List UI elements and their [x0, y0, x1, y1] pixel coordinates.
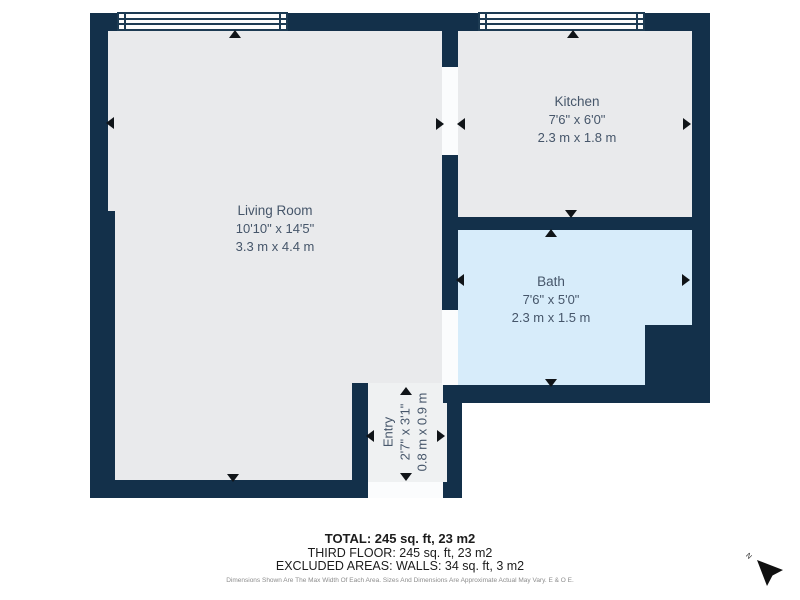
window-pane-line [480, 23, 643, 25]
entry-dim-arrow-left [366, 430, 374, 442]
kitchen-name: Kitchen [538, 93, 617, 111]
kitchen-dim-arrow-right [683, 118, 691, 130]
kitchen-dims-metric: 2.3 m x 1.8 m [538, 129, 617, 147]
window-end-cap [124, 14, 126, 29]
kitchen-window [478, 12, 645, 31]
summary-excluded-areas: EXCLUDED AREAS: WALLS: 34 sq. ft, 3 m2 [0, 559, 800, 573]
left-wall-step [108, 211, 115, 498]
entry-dim-arrow-right [437, 430, 445, 442]
living-kitchen-door-opening [442, 67, 458, 155]
bath-dims-metric: 2.3 m x 1.5 m [512, 309, 591, 327]
kitchen-dim-arrow-up [567, 30, 579, 38]
living-room-dims-imperial: 10'10" x 14'5" [236, 220, 315, 238]
living-room-dims-metric: 3.3 m x 4.4 m [236, 238, 315, 256]
right-wall [692, 13, 710, 403]
window-pane-line [119, 18, 286, 20]
living-room-window [117, 12, 288, 31]
bath-dim-arrow-right [682, 274, 690, 286]
window-end-cap [279, 14, 281, 29]
entry-label: Entry 2'7" x 3'1" 0.8 m x 0.9 m [380, 393, 431, 472]
bath-dims-imperial: 7'6" x 5'0" [512, 291, 591, 309]
entry-exterior-door-opening [368, 482, 443, 498]
living-kitchen-divider-top [442, 31, 458, 67]
summary-third-floor: THIRD FLOOR: 245 sq. ft, 23 m2 [0, 546, 800, 560]
left-wall [90, 13, 108, 498]
entry-right-wall-foot [443, 482, 462, 498]
summary-total: TOTAL: 245 sq. ft, 23 m2 [0, 531, 800, 546]
living-divider-mid [442, 155, 458, 310]
kitchen-label: Kitchen 7'6" x 6'0" 2.3 m x 1.8 m [538, 93, 617, 147]
bottom-wall [90, 480, 368, 498]
entry-dims-imperial: 2'7" x 3'1" [397, 393, 414, 472]
living-room-dim-arrow-left [106, 117, 114, 129]
north-arrow-shape [757, 560, 783, 586]
kitchen-bath-wall [442, 217, 710, 230]
bath-label: Bath 7'6" x 5'0" 2.3 m x 1.5 m [512, 273, 591, 327]
bath-dim-arrow-left [456, 274, 464, 286]
living-room-name: Living Room [236, 202, 315, 220]
bath-bottom-wall [443, 385, 710, 403]
window-pane-line [119, 23, 286, 25]
bath-dim-arrow-down [545, 379, 557, 387]
bath-dim-arrow-up [545, 229, 557, 237]
window-end-cap [636, 14, 638, 29]
entry-dims-metric: 0.8 m x 0.9 m [414, 393, 431, 472]
living-room-dim-arrow-right [436, 118, 444, 130]
kitchen-dim-arrow-down [565, 210, 577, 218]
living-room-dim-arrow-down [227, 474, 239, 482]
window-pane-line [480, 18, 643, 20]
bath-name: Bath [512, 273, 591, 291]
floorplan-canvas: Living Room 10'10" x 14'5" 3.3 m x 4.4 m… [0, 0, 800, 600]
summary-disclaimer: Dimensions Shown Are The Max Width Of Ea… [0, 577, 800, 584]
window-end-cap [485, 14, 487, 29]
north-arrow-icon: N [730, 540, 790, 600]
living-room-label: Living Room 10'10" x 14'5" 3.3 m x 4.4 m [236, 202, 315, 256]
kitchen-dims-imperial: 7'6" x 6'0" [538, 111, 617, 129]
entry-dim-arrow-down [400, 473, 412, 481]
north-arrow-label: N [744, 552, 753, 561]
entry-name: Entry [380, 393, 397, 472]
kitchen-dim-arrow-left [457, 118, 465, 130]
living-room-dim-arrow-up [229, 30, 241, 38]
living-bath-door-opening [442, 310, 458, 385]
